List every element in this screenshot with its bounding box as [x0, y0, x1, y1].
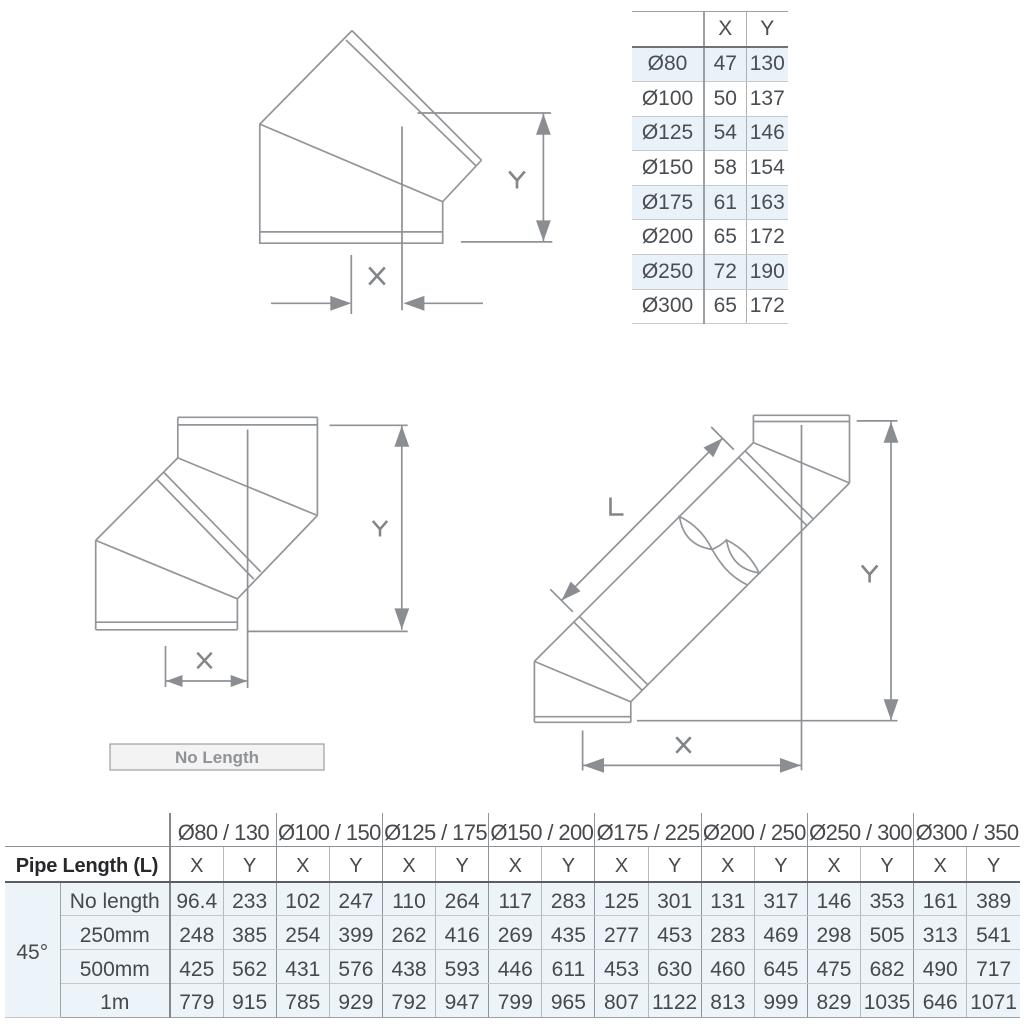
svg-text:No Length: No Length	[175, 748, 259, 767]
